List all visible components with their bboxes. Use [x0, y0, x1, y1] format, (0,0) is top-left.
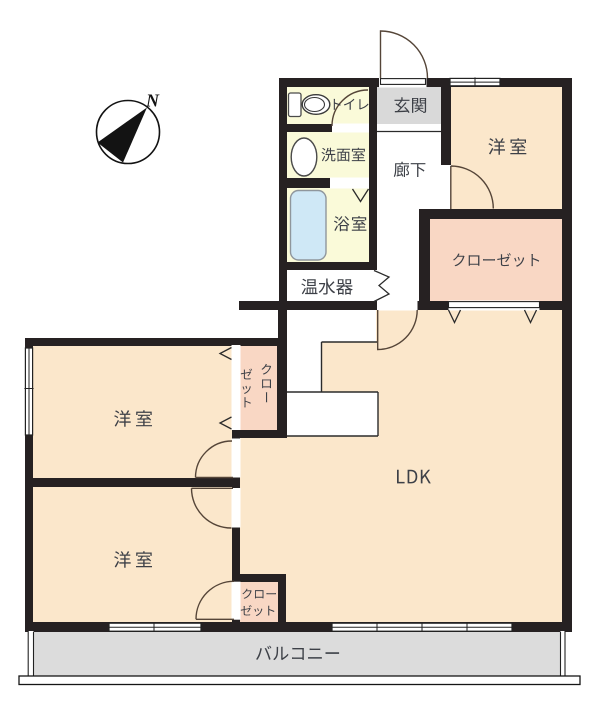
svg-text:N: N [145, 91, 160, 111]
